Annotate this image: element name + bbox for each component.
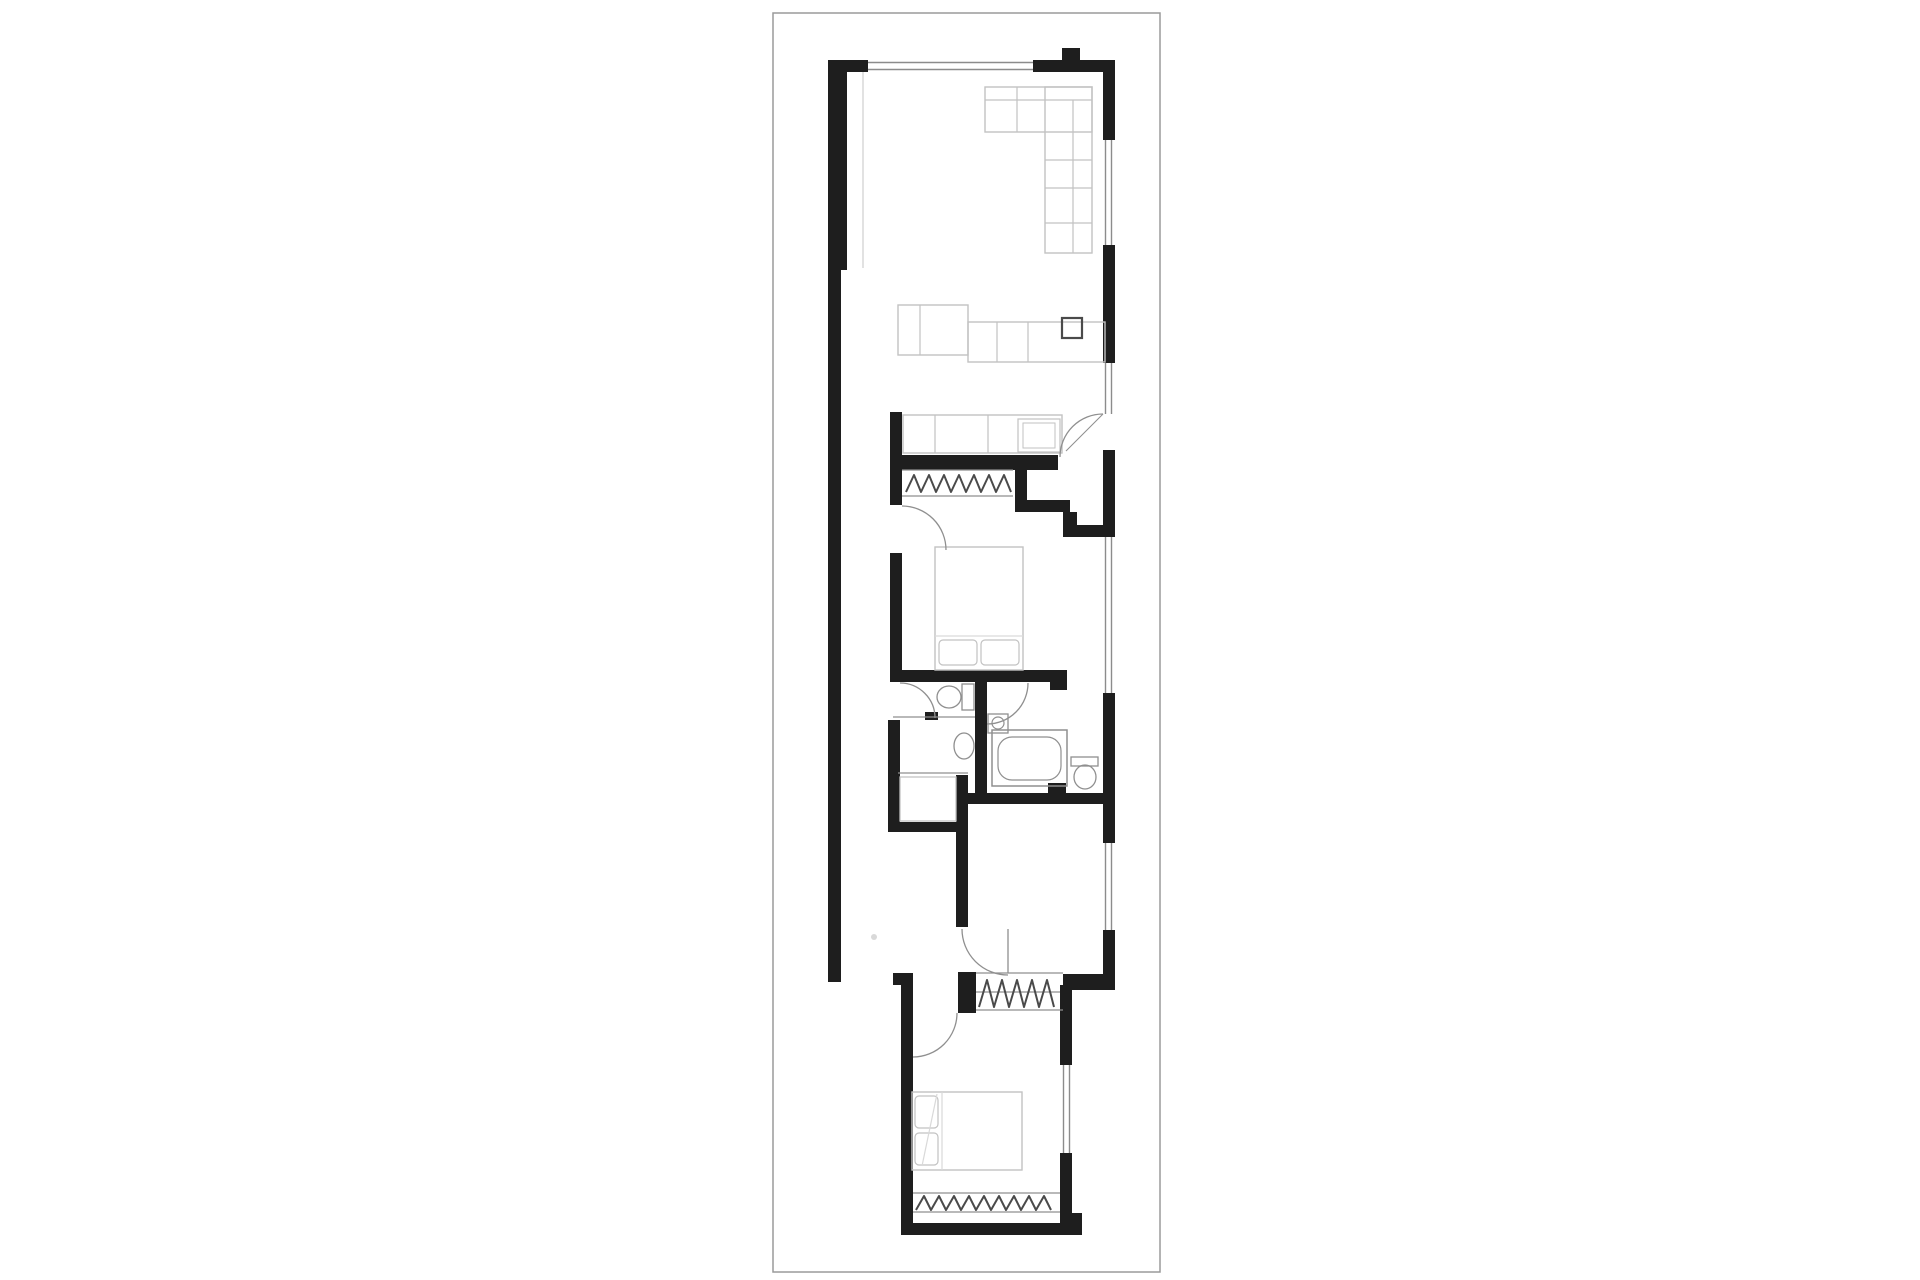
right-wall-seg3 <box>1103 450 1115 537</box>
rear-bed-bottom-corner <box>1060 1213 1082 1225</box>
wc-pier <box>925 712 938 720</box>
laundry-bed1-wall <box>890 455 1058 470</box>
bath-bottom-wall <box>958 793 1110 804</box>
left-wall-lower <box>828 268 841 982</box>
right-wall-seg1 <box>1103 60 1115 140</box>
rear-bed-left-stub <box>893 973 913 985</box>
store-bottom-wall <box>888 822 958 832</box>
left-wall-upper <box>828 60 847 270</box>
rear-bed-bottom-wall <box>901 1223 1082 1235</box>
ceiling-mark-dot <box>871 934 877 940</box>
floor-plan-image <box>0 0 1920 1280</box>
screenshot-canvas <box>0 0 1920 1280</box>
rear-bed-left-wall <box>901 985 913 1235</box>
bath-center-wall <box>975 680 987 795</box>
rear-robe-left-pier <box>958 972 976 1013</box>
bed1-left-wall <box>890 553 902 673</box>
floor-plan-svg <box>0 0 1920 1280</box>
bath-left-wall <box>888 720 900 832</box>
rear-bed-right-wall-top <box>1060 985 1072 1065</box>
top-flue-stub <box>1062 48 1080 61</box>
bath-bottom-pier <box>1048 783 1066 793</box>
top-wall-left-stub <box>828 60 868 72</box>
top-wall-right <box>1033 60 1115 72</box>
bed1-bottom-stub <box>1050 682 1067 690</box>
vestibule-step-h2 <box>1070 525 1115 537</box>
right-wall-seg4 <box>1103 693 1115 843</box>
vestibule-step-h1 <box>1015 500 1070 512</box>
